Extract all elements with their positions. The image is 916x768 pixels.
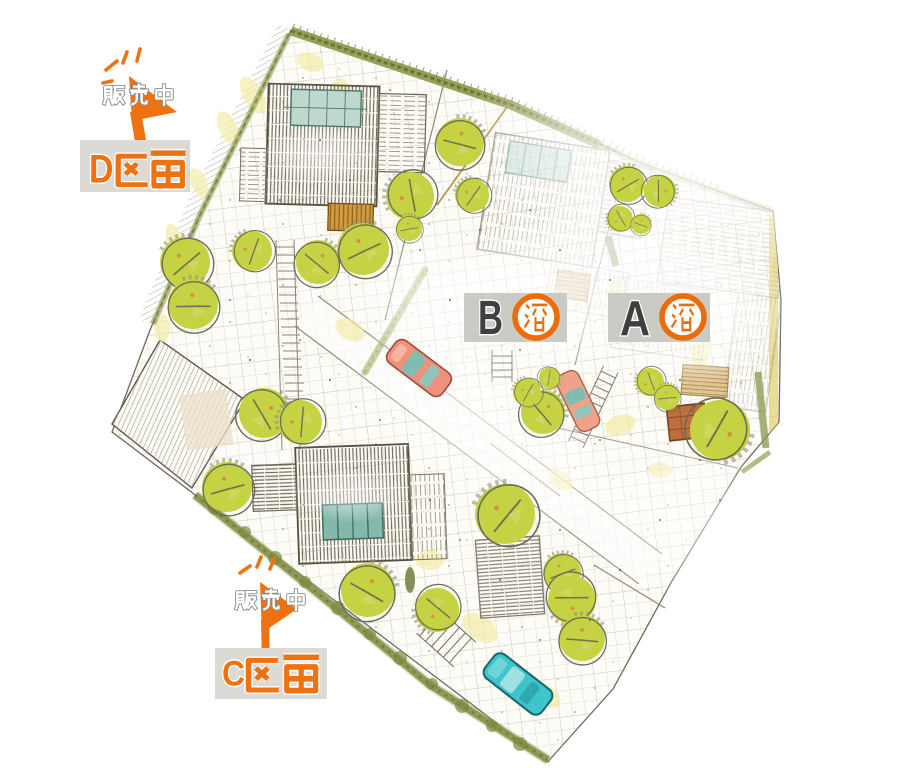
svg-text:C: C	[222, 655, 245, 694]
svg-text:B: B	[478, 292, 503, 345]
svg-text:D: D	[89, 148, 114, 192]
svg-text:A: A	[620, 292, 650, 346]
